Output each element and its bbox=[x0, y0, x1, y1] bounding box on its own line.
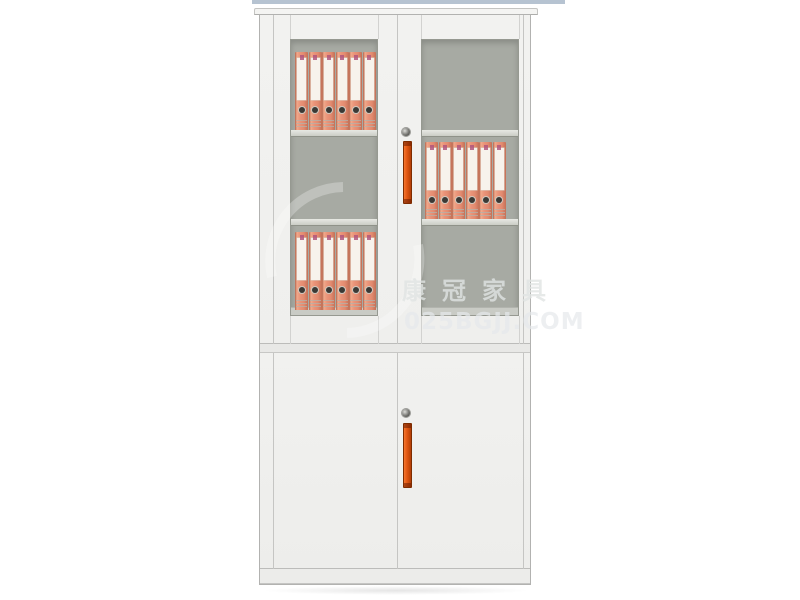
watermark-brand-text: 康冠家具 bbox=[402, 271, 562, 306]
binder-text-lines bbox=[467, 209, 478, 217]
binder-text-lines bbox=[350, 120, 361, 128]
binder-tab-dot bbox=[443, 145, 447, 150]
binder-tab-dot bbox=[327, 55, 331, 60]
top-border-strip bbox=[252, 0, 565, 4]
binder-text-lines bbox=[480, 209, 491, 217]
floor-shadow bbox=[262, 586, 530, 595]
shelf-divider bbox=[291, 130, 377, 137]
binder-grip-hole bbox=[299, 107, 305, 113]
binder-grip-hole bbox=[312, 107, 318, 113]
door-seam-left-lower bbox=[273, 353, 274, 569]
frame-stub bbox=[421, 15, 422, 39]
binder-tab-dot bbox=[470, 145, 474, 150]
binder-tab-dot bbox=[313, 55, 317, 60]
frame-stub bbox=[290, 15, 291, 39]
door-seam-right-lower bbox=[523, 353, 524, 569]
binder bbox=[309, 52, 322, 130]
binder-label bbox=[365, 58, 374, 100]
binder bbox=[322, 52, 335, 130]
binder bbox=[349, 52, 362, 130]
binder-tab-dot bbox=[430, 145, 434, 150]
binder-text-lines bbox=[323, 120, 334, 128]
door-handle-lower bbox=[403, 423, 412, 488]
plinth bbox=[260, 569, 530, 584]
binder-grip-hole bbox=[339, 107, 345, 113]
binder-label bbox=[324, 58, 333, 100]
binder-text-lines bbox=[453, 209, 464, 217]
binder-grip-hole bbox=[326, 107, 332, 113]
binder-text-lines bbox=[440, 209, 451, 217]
binder-text-lines bbox=[494, 209, 505, 217]
binder-grip-hole bbox=[496, 197, 502, 203]
binder-text-lines bbox=[364, 120, 375, 128]
binder-grip-hole bbox=[442, 197, 448, 203]
binder bbox=[295, 52, 308, 130]
binder-label bbox=[311, 58, 320, 100]
binder-tab-dot bbox=[484, 145, 488, 150]
binder-tab-dot bbox=[300, 55, 304, 60]
shelf-divider bbox=[422, 130, 518, 137]
binder-label bbox=[441, 148, 450, 190]
binder-text-lines bbox=[310, 120, 321, 128]
binder-label bbox=[481, 148, 490, 190]
binder-label bbox=[468, 148, 477, 190]
watermark-url-text: 025BGJJ.COM bbox=[404, 309, 585, 335]
binder-tab-dot bbox=[497, 145, 501, 150]
binder-grip-hole bbox=[353, 107, 359, 113]
binder bbox=[479, 142, 492, 219]
binder-label bbox=[351, 58, 360, 100]
binder-tab-dot bbox=[367, 55, 371, 60]
frame-stub bbox=[519, 15, 520, 39]
product-photo: 康冠家具 025BGJJ.COM bbox=[0, 0, 800, 600]
keyhole-lock-upper bbox=[402, 128, 410, 136]
door-seam-center-lower bbox=[397, 353, 398, 569]
binder-grip-hole bbox=[456, 197, 462, 203]
binder-tab-dot bbox=[354, 55, 358, 60]
binder-label bbox=[495, 148, 504, 190]
binder-row bbox=[295, 52, 376, 130]
lower-door-section bbox=[260, 353, 530, 569]
binder-grip-hole bbox=[366, 107, 372, 113]
binder-text-lines bbox=[337, 120, 348, 128]
binder bbox=[466, 142, 479, 219]
binder bbox=[363, 52, 376, 130]
binder-text-lines bbox=[296, 120, 307, 128]
binder-label bbox=[454, 148, 463, 190]
binder-tab-dot bbox=[457, 145, 461, 150]
binder-label bbox=[297, 58, 306, 100]
binder-grip-hole bbox=[469, 197, 475, 203]
frame-stub bbox=[378, 15, 379, 39]
binder-label bbox=[338, 58, 347, 100]
keyhole-lock-lower bbox=[402, 409, 410, 417]
binder-tab-dot bbox=[340, 55, 344, 60]
binder bbox=[493, 142, 506, 219]
binder-grip-hole bbox=[483, 197, 489, 203]
binder bbox=[336, 52, 349, 130]
binder bbox=[452, 142, 465, 219]
binder bbox=[439, 142, 452, 219]
